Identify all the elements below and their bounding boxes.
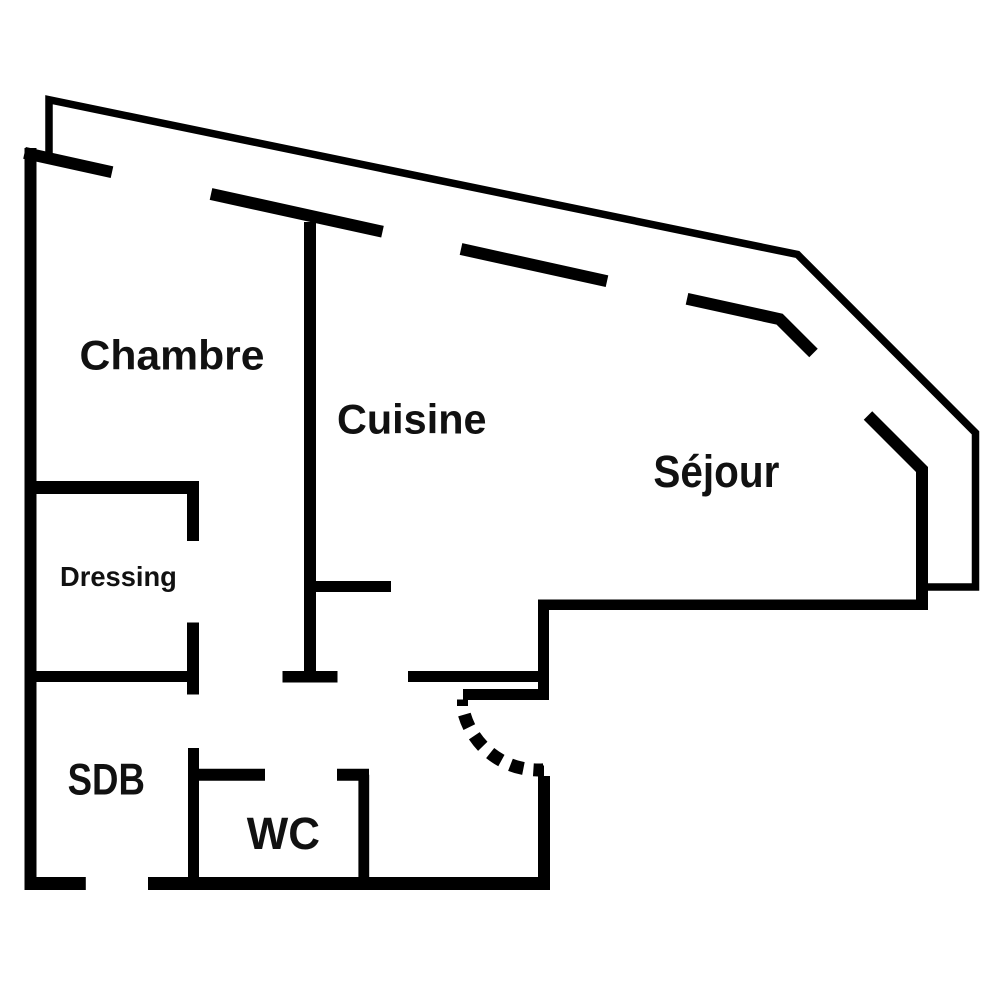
svg-text:Chambre: Chambre: [80, 331, 265, 378]
svg-text:WC: WC: [247, 808, 320, 859]
svg-text:Dressing: Dressing: [60, 561, 177, 592]
svg-text:Séjour: Séjour: [653, 446, 779, 497]
svg-text:SDB: SDB: [68, 755, 145, 804]
svg-text:Cuisine: Cuisine: [337, 396, 487, 443]
